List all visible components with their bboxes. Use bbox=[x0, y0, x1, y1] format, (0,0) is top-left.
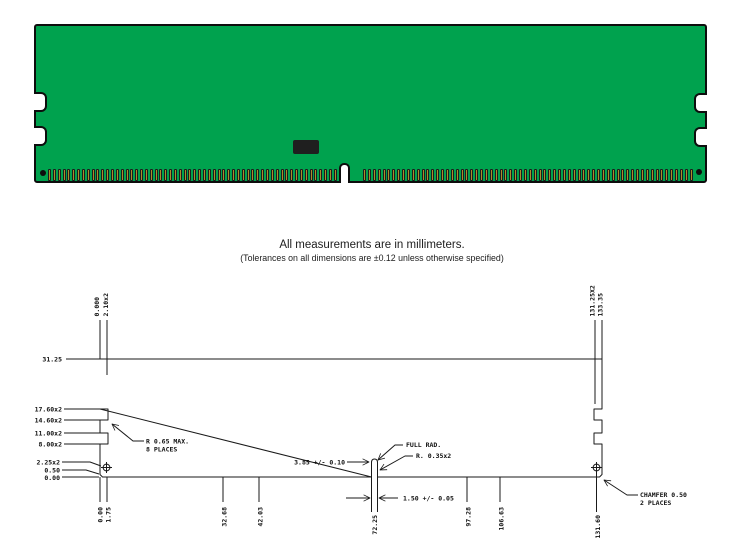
note-chamfer-2: 2 PLACES bbox=[640, 499, 671, 507]
full-rad-leader bbox=[378, 445, 403, 460]
dim-label-x106-63: 106.63 bbox=[498, 507, 506, 531]
dim-label-x97-28: 97.28 bbox=[465, 507, 473, 527]
note-key-width: 1.50 +/- 0.05 bbox=[403, 495, 454, 503]
key-slot bbox=[372, 459, 378, 512]
dim-label-right-notch: 131.25X2 bbox=[589, 285, 597, 316]
dim-label-notch2-bottom: 8.00x2 bbox=[39, 441, 63, 449]
dim-label-height: 31.25 bbox=[42, 356, 62, 364]
key-radius-leader bbox=[380, 456, 413, 470]
dim-label-x1-75: 1.75 bbox=[105, 507, 113, 523]
dim-label-x32-68: 32.68 bbox=[221, 507, 229, 527]
top-extension-lines bbox=[100, 320, 602, 404]
dim-label-left-edge: 0.000 bbox=[93, 297, 101, 317]
dim-label-notch1-bottom: 14.60x2 bbox=[35, 417, 62, 425]
dim-label-x0: 0.00 bbox=[97, 507, 105, 523]
note-key-radius: R. 0.35x2 bbox=[416, 452, 451, 460]
module-outline bbox=[100, 359, 602, 477]
dimension-drawing: 0.000 2.10x2 131.25X2 133.35 31.25 17.60… bbox=[0, 0, 744, 553]
left-leader-lines bbox=[62, 359, 101, 477]
notch-radius-leader bbox=[112, 424, 144, 441]
dimm-dimension-figure: All measurements are in millimeters. (To… bbox=[0, 0, 744, 553]
note-full-rad: FULL RAD. bbox=[406, 441, 441, 449]
dim-label-bottom-edge: 0.00 bbox=[44, 474, 60, 482]
dim-label-x42-03: 42.03 bbox=[257, 507, 265, 527]
dim-label-length: 133.35 bbox=[597, 293, 605, 317]
dim-label-x72-25: 72.25 bbox=[371, 515, 379, 535]
left-hole-symbol bbox=[101, 462, 112, 473]
note-notch-radius-1: R 0.65 MAX. bbox=[146, 438, 189, 446]
note-notch-radius-2: 8 PLACES bbox=[146, 446, 177, 454]
dim-label-notch2-top: 11.00x2 bbox=[35, 430, 62, 438]
note-chamfer-1: CHAMFER 0.50 bbox=[640, 491, 687, 499]
chamfer-leader bbox=[604, 480, 638, 495]
dim-label-x131-60: 131.60 bbox=[594, 515, 602, 539]
bottom-extension-lines bbox=[100, 472, 597, 512]
dim-label-notch-depth: 2.10x2 bbox=[102, 293, 110, 317]
dim-label-hole-offset: 2.25x2 bbox=[37, 459, 61, 467]
right-hole-symbol bbox=[591, 462, 602, 473]
dim-label-notch1-top: 17.60x2 bbox=[35, 406, 62, 414]
note-key-depth: 3.85 +/- 0.10 bbox=[294, 459, 345, 467]
